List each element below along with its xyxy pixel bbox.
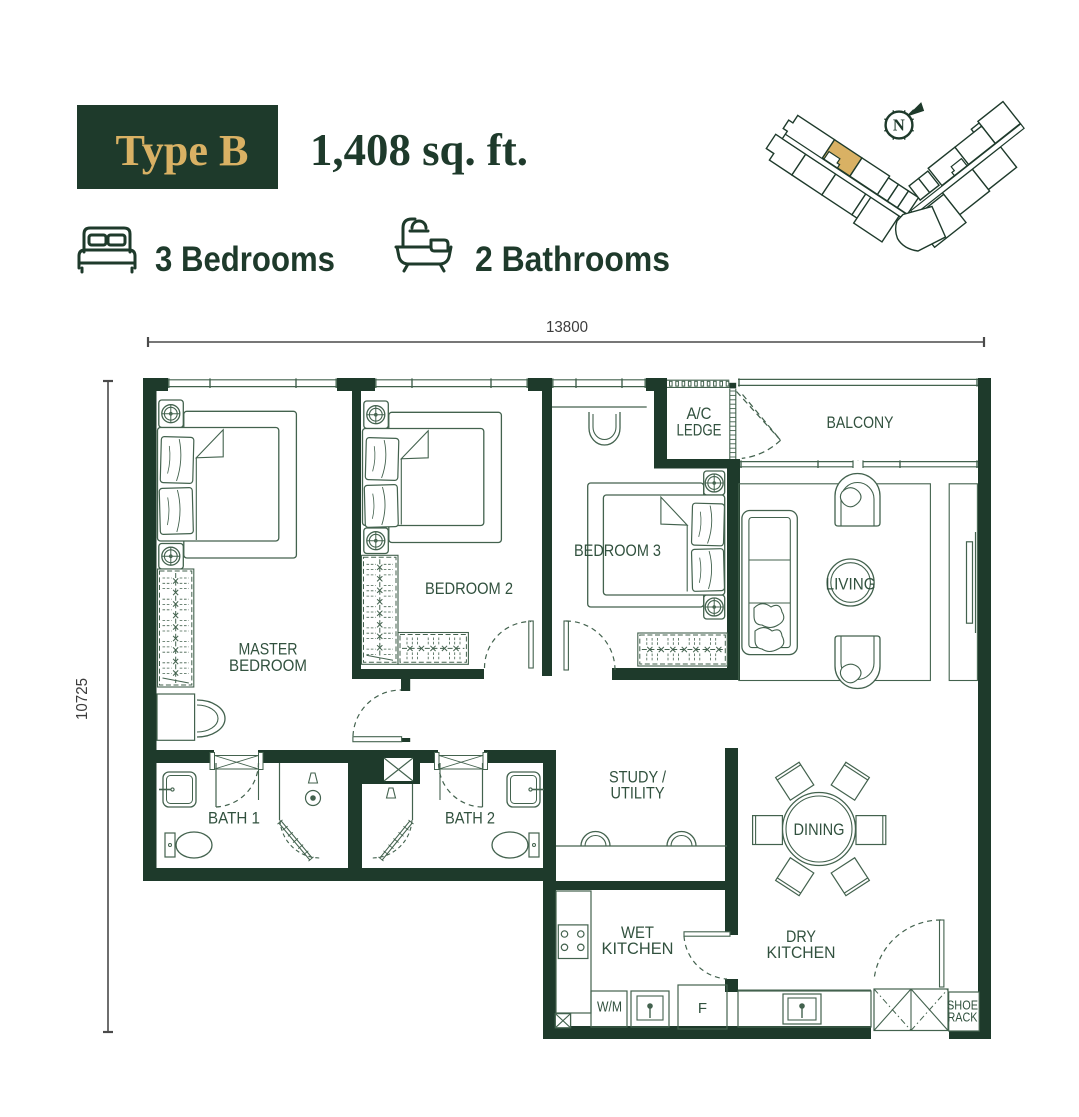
svg-text:DINING: DINING xyxy=(794,821,845,839)
svg-text:1,408 sq. ft.: 1,408 sq. ft. xyxy=(310,124,528,175)
svg-text:F: F xyxy=(698,1000,707,1017)
svg-text:2 Bathrooms: 2 Bathrooms xyxy=(475,240,670,279)
svg-text:BEDROOM 3: BEDROOM 3 xyxy=(574,542,661,560)
svg-text:RACK: RACK xyxy=(948,1010,978,1025)
svg-text:KITCHEN: KITCHEN xyxy=(602,940,674,958)
svg-text:BEDROOM 2: BEDROOM 2 xyxy=(425,580,513,598)
svg-text:LEDGE: LEDGE xyxy=(677,422,722,440)
svg-text:BALCONY: BALCONY xyxy=(827,414,894,432)
svg-text:W/M: W/M xyxy=(597,999,622,1016)
svg-text:A/C: A/C xyxy=(687,405,712,423)
svg-text:10725: 10725 xyxy=(74,678,91,720)
svg-text:UTILITY: UTILITY xyxy=(611,785,665,803)
svg-text:13800: 13800 xyxy=(546,319,588,336)
svg-text:BEDROOM: BEDROOM xyxy=(229,657,307,675)
svg-text:N: N xyxy=(893,116,905,135)
svg-text:KITCHEN: KITCHEN xyxy=(767,944,836,962)
svg-text:BATH 1: BATH 1 xyxy=(208,810,260,828)
svg-text:LIVING: LIVING xyxy=(826,576,876,594)
svg-text:BATH 2: BATH 2 xyxy=(445,810,495,828)
svg-text:Type B: Type B xyxy=(116,125,249,175)
svg-text:3 Bedrooms: 3 Bedrooms xyxy=(155,240,335,279)
svg-text:MASTER: MASTER xyxy=(239,641,298,659)
